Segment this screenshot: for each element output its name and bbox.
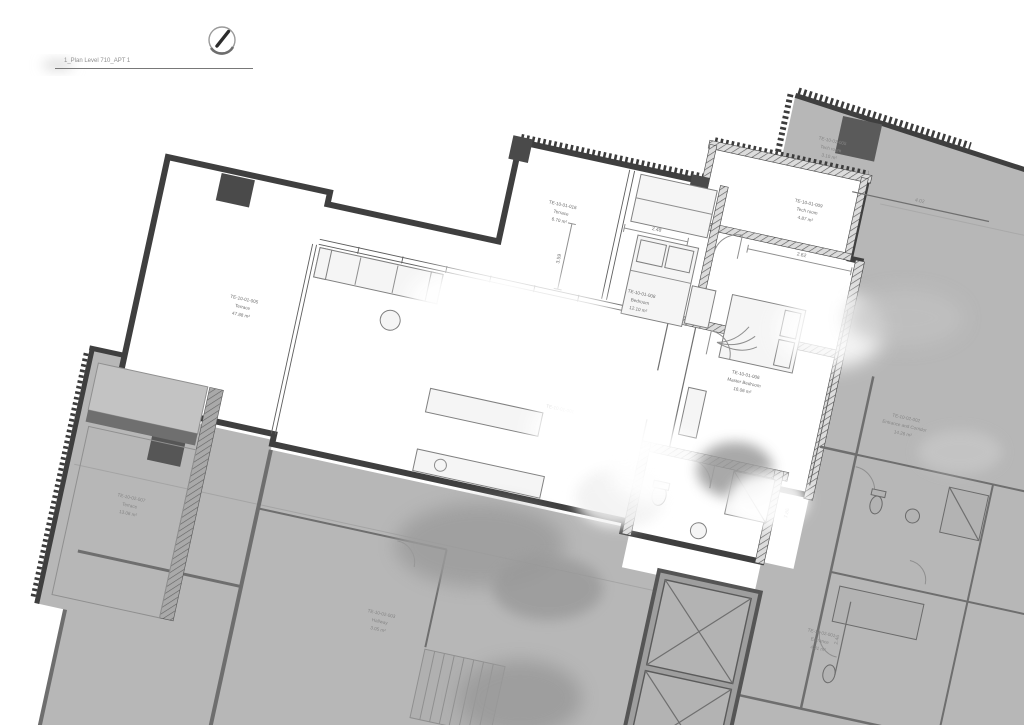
room-label-master-bedroom: TE-10-01-006 Master Bedroom 16.06 m² bbox=[725, 369, 763, 397]
north-arrow-icon bbox=[209, 27, 235, 54]
room-area: 6.70 m² bbox=[551, 216, 568, 224]
room-name: Terrace bbox=[553, 209, 569, 217]
room-area: 16.06 m² bbox=[733, 386, 752, 395]
floor-plan-viewport: 1_Plan Level 710_APT 1 bbox=[0, 0, 1024, 725]
view-title: 1_Plan Level 710_APT 1 bbox=[64, 58, 131, 64]
floor-plan-drawing: 1_Plan Level 710_APT 1 bbox=[0, 0, 1024, 725]
room-label-tech-room: TE-10-01-009 Tech room 4.87 m² bbox=[791, 198, 824, 225]
insulation-teeth bbox=[521, 137, 707, 177]
dimension-label: 3.59 bbox=[555, 253, 563, 264]
room-label-terrace-main: TE-10-01-005 Terrace 47.88 m² bbox=[227, 294, 260, 321]
room-area: 4.87 m² bbox=[797, 215, 814, 223]
room-area: 47.88 m² bbox=[232, 310, 251, 319]
dimension-label: 2.48 bbox=[651, 226, 662, 234]
dimension-label: 2.62 bbox=[796, 251, 807, 259]
dresser bbox=[679, 387, 707, 438]
room-code: TE-10-01-016 bbox=[548, 199, 577, 210]
view-title-block: 1_Plan Level 710_APT 1 bbox=[42, 58, 253, 70]
room-name: Terrace bbox=[235, 303, 251, 311]
room-code: TE-10-01-005 bbox=[230, 294, 259, 305]
room-label-terrace-small: TE-10-01-016 Terrace 6.70 m² bbox=[545, 199, 578, 226]
